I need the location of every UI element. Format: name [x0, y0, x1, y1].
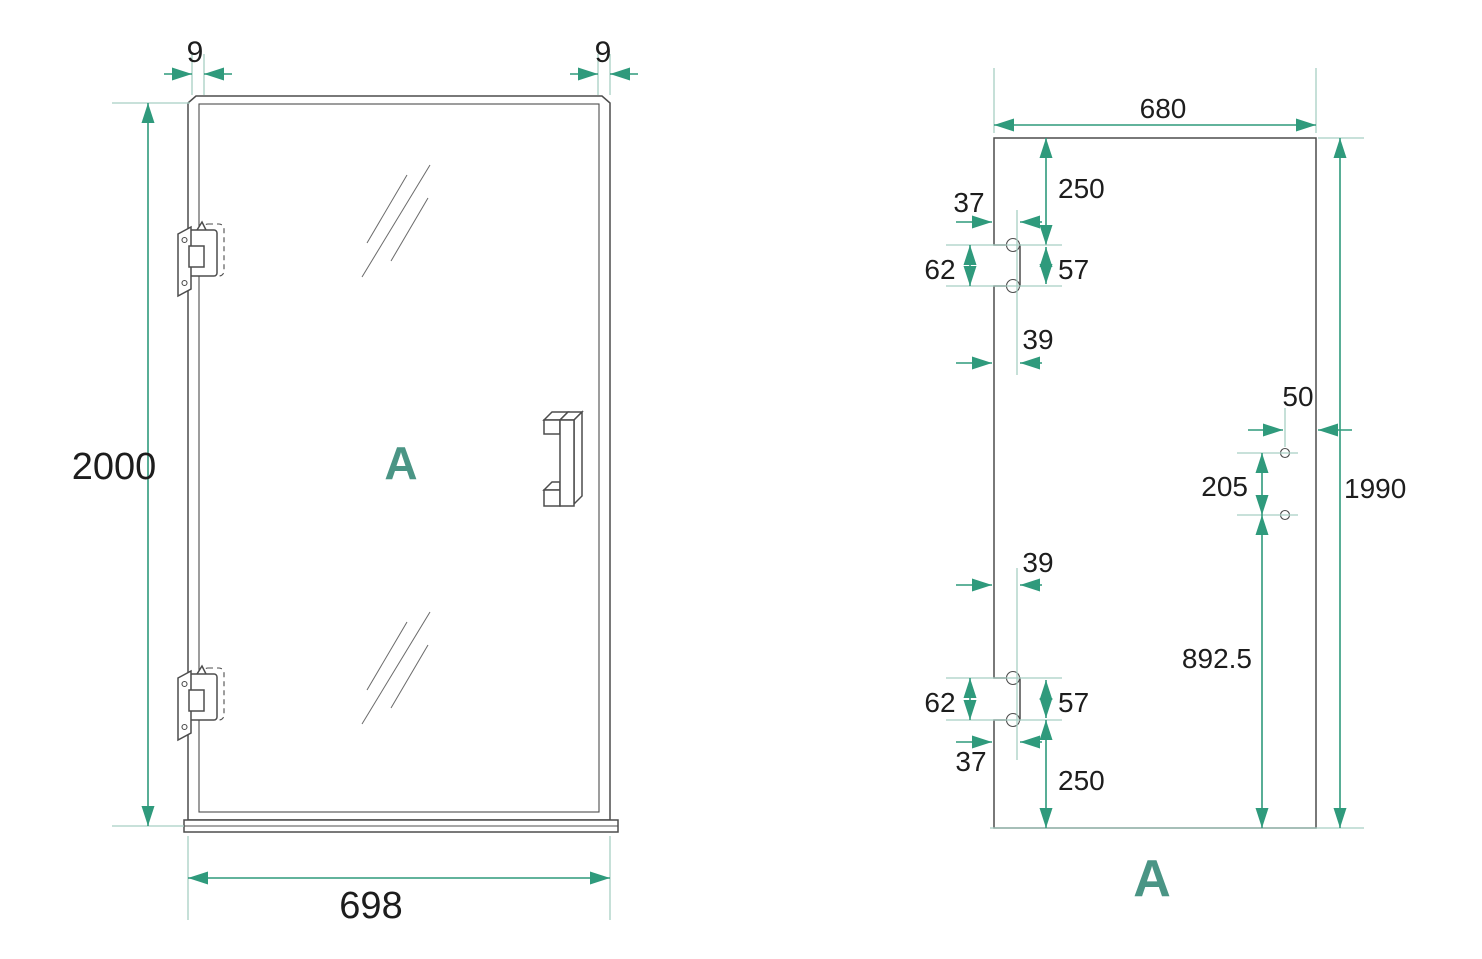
dim-hinge-bottom-center-label: 39: [1022, 547, 1053, 578]
dim-hinge-top-cutout-label: 62: [924, 254, 955, 285]
dim-frame-thickness-right: 9: [570, 36, 638, 95]
dim-hinge-top-offset-label: 250: [1058, 173, 1105, 204]
front-view: A 9 9 2000 698: [72, 36, 638, 927]
dim-handle-hole-spacing-label: 205: [1201, 471, 1248, 502]
dim-hinge-bottom-holes-label: 57: [1058, 687, 1089, 718]
dim-hinge-top-center-label: 39: [1022, 324, 1053, 355]
dim-door-height: 2000: [72, 103, 190, 826]
dim-door-height-label: 2000: [72, 446, 157, 488]
dim-hinge-bottom-cutout-label: 62: [924, 687, 955, 718]
dim-frame-thickness-left: 9: [164, 36, 232, 95]
dim-frame-right-label: 9: [595, 36, 612, 69]
dim-panel-width: 680: [994, 68, 1316, 133]
glass-panel-view: 680 1990 250 37 62 57: [924, 68, 1406, 908]
dim-frame-left-label: 9: [187, 36, 204, 69]
glass-panel: [994, 138, 1316, 828]
dim-handle-edge-gap-label: 50: [1282, 381, 1313, 412]
dim-hinge-top-holes-label: 57: [1058, 254, 1089, 285]
dim-panel-width-label: 680: [1140, 93, 1187, 124]
front-view-label: A: [384, 437, 417, 489]
dim-panel-height-label: 1990: [1344, 473, 1406, 504]
dim-handle-to-bottom-label: 892.5: [1182, 643, 1252, 674]
dim-hinge-bottom-edge-gap-label: 37: [955, 746, 986, 777]
glass-panel-view-label: A: [1133, 850, 1171, 908]
drawing-sheet: A 9 9 2000 698: [0, 0, 1482, 959]
dim-hinge-top-edge-gap-label: 37: [953, 187, 984, 218]
dim-door-width: 698: [188, 836, 610, 927]
dim-door-width-label: 698: [339, 885, 402, 927]
dim-hinge-bottom-offset-label: 250: [1058, 765, 1105, 796]
technical-drawing-canvas: A 9 9 2000 698: [0, 0, 1482, 959]
